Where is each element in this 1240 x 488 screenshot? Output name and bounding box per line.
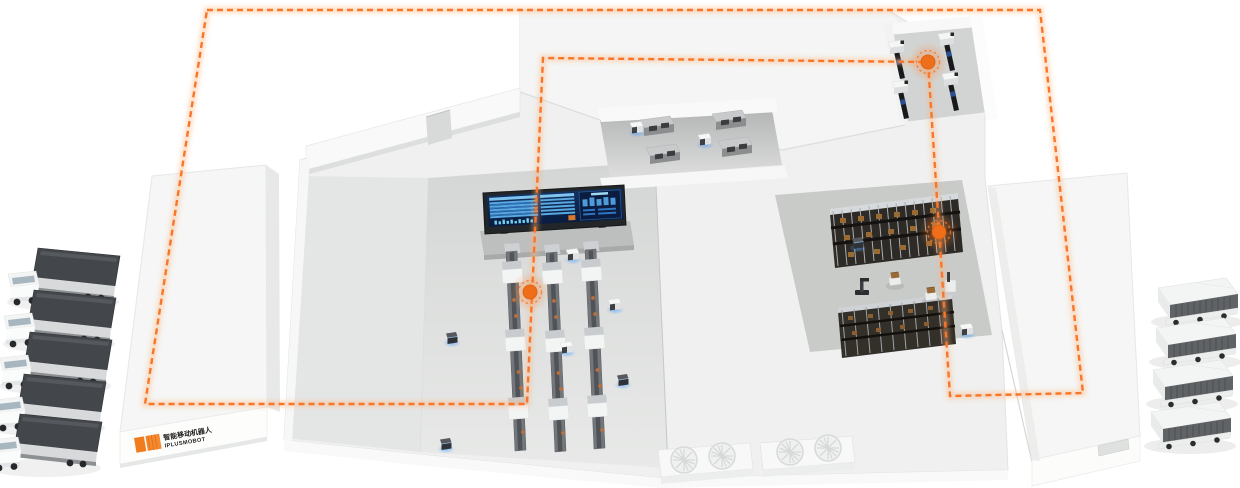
container-van — [1144, 402, 1236, 454]
dock-fan — [815, 435, 841, 461]
route-node — [908, 42, 948, 82]
route-node — [919, 212, 959, 252]
dock-fan — [709, 443, 735, 469]
container-van — [1146, 360, 1238, 412]
dock-fan — [671, 447, 697, 473]
factory-illustration: 智能移动机器人 IPLUSMOBOT — [0, 0, 1240, 488]
outbound-trucks — [0, 248, 120, 477]
route-node — [510, 272, 550, 312]
factory-scene: 智能移动机器人 IPLUSMOBOT — [0, 0, 1240, 488]
inbound-vans — [1144, 278, 1240, 454]
left-warehouse: 智能移动机器人 IPLUSMOBOT — [120, 165, 280, 468]
dock-fan — [777, 439, 803, 465]
